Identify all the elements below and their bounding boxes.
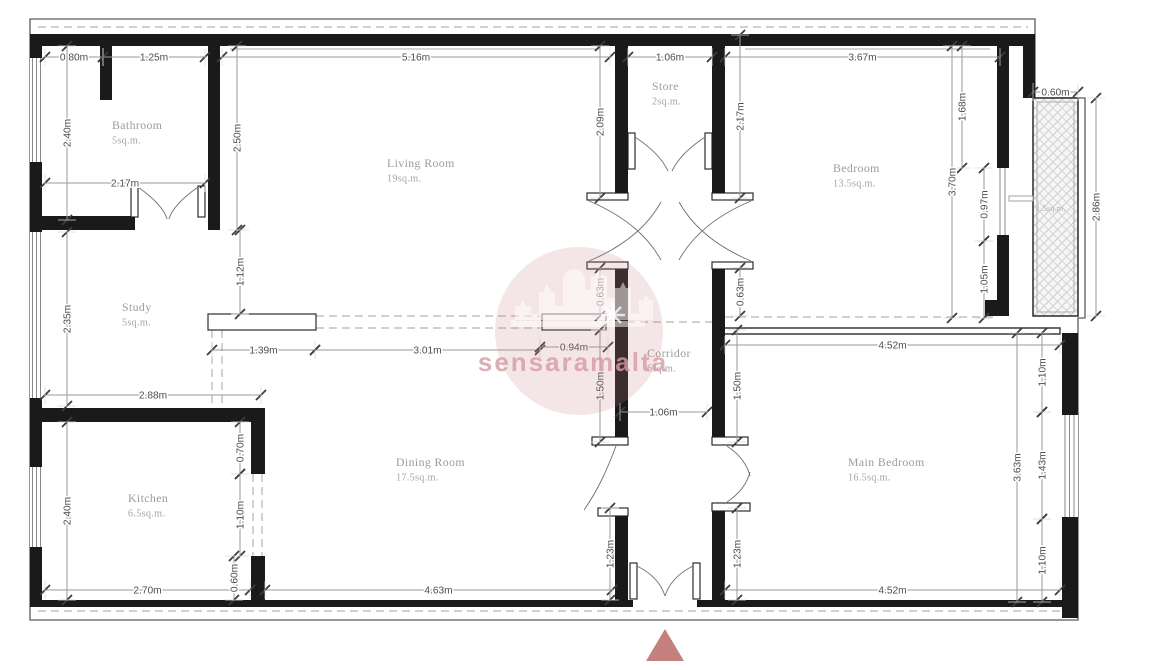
dimension-label: 1.10m [1038,358,1049,386]
room-area-label: 19sq.m. [387,174,421,185]
dimension-label: 3.63m [1013,453,1024,481]
dimension-label: 1.23m [733,540,744,568]
watermark: sensaramalta [478,247,668,415]
room-name-label: Kitchen [128,491,168,505]
dimension-label: 1.68m [958,93,969,121]
dimension-label: 2.50m [233,124,244,152]
dimension-label: 1.10m [1038,546,1049,574]
dimension-label: 3.67m [848,53,876,64]
dimension-label: 2.86m [1092,193,1103,221]
room-area-label: 6.5sq.m. [128,509,165,520]
dimension-label: 1.23m [606,540,617,568]
room-area-label: 5sq.m. [112,136,141,147]
dimension-label: 1.06m [649,408,677,419]
dimension-label: 1.10m [236,501,247,529]
dimension-label: 0.60m [1041,88,1069,99]
dimension-label: 1.06m [656,53,684,64]
room-area-label: 13.5sq.m. [833,179,876,190]
entrance-arrow-icon [646,629,684,661]
dimension-label: 0.70m [236,434,247,462]
room-name-label: Bathroom [112,118,162,132]
dimension-label: 4.63m [424,586,452,597]
room-name-label: Main Bedroom [848,455,925,469]
dimension-label: 2.35m [63,305,74,333]
dimension-label: 2.17m [111,179,139,190]
dimension-label: 1.39m [249,346,277,357]
watermark-text: sensaramalta [478,347,668,377]
dimension-label: 2.88m [139,391,167,402]
room-name-label: Store [652,79,679,93]
dimension-label: 2.17m [736,102,747,130]
room-name-label: Bedroom [833,161,880,175]
dimension-label: 2.40m [63,497,74,525]
dimension-label: 3.70m [948,168,959,196]
dimension-label: 0.80m [60,53,88,64]
room-area-label: 16.5sq.m. [848,473,891,484]
dimension-label: 2.09m [596,108,607,136]
floor-plan-drawing: 1.5sq.m. [0,0,1158,670]
dimension-label: 1.43m [1038,451,1049,479]
room-area-label: 5sq.m. [122,318,151,329]
floor-plan-canvas: 1.5sq.m. [0,0,1158,670]
dimension-label: 0.63m [736,278,747,306]
room-name-label: Living Room [387,156,455,170]
dimension-label: 5.16m [402,53,430,64]
dimension-label: 3.01m [413,346,441,357]
light-shaft: 1.5sq.m. [1033,98,1078,316]
room-area-label: 2sq.m. [652,97,681,108]
room-area-label: 17.5sq.m. [396,473,439,484]
dimension-label: 4.52m [878,341,906,352]
room-name-label: Dining Room [396,455,465,469]
room-name-label: Study [122,300,152,314]
dimension-label: 4.52m [878,586,906,597]
shaft-area-label: 1.5sq.m. [1036,203,1065,213]
dimension-label: 2.70m [133,586,161,597]
dimension-label: 0.97m [980,190,991,218]
dimension-label: 1.25m [140,53,168,64]
dimension-label: 1.12m [236,258,247,286]
dimension-label: 1.05m [980,265,991,293]
dimension-label: 2.40m [63,119,74,147]
dimension-label: 0.60m [230,564,241,592]
dimension-label: 1.50m [733,372,744,400]
